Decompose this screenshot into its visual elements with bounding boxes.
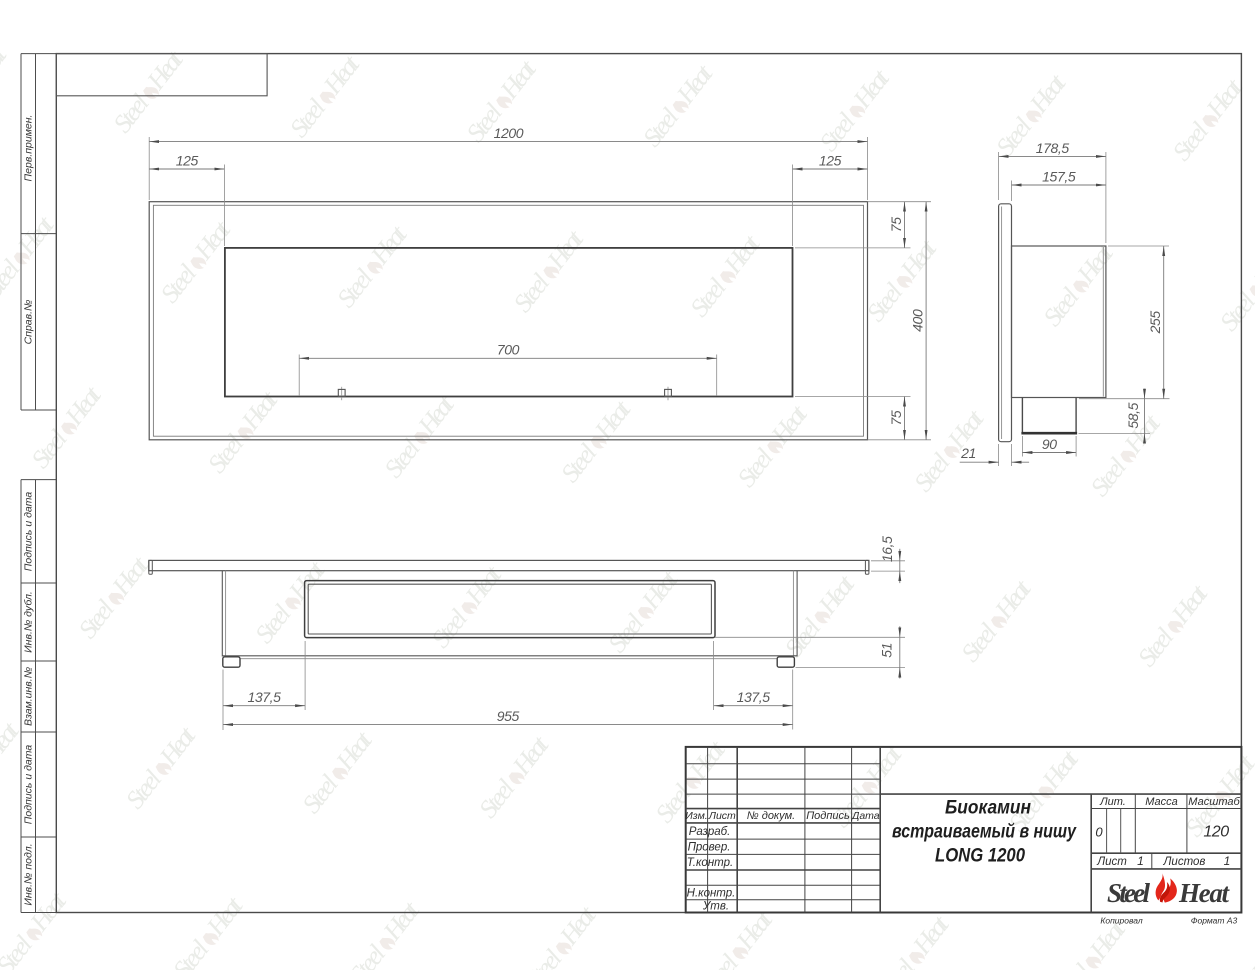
svg-text:1200: 1200 <box>494 125 524 141</box>
svg-text:125: 125 <box>176 152 199 168</box>
svg-text:Копировал: Копировал <box>1100 916 1142 926</box>
svg-text:Подпись и дата: Подпись и дата <box>23 745 35 825</box>
svg-text:51: 51 <box>879 643 895 658</box>
svg-text:Дата: Дата <box>851 810 880 822</box>
svg-text:120: 120 <box>1203 824 1229 841</box>
svg-text:Масштаб: Масштаб <box>1188 796 1240 808</box>
svg-text:1: 1 <box>1137 854 1144 868</box>
svg-text:700: 700 <box>497 342 520 358</box>
svg-text:Справ.№: Справ.№ <box>23 300 35 345</box>
svg-text:955: 955 <box>497 708 520 724</box>
svg-text:Лист: Лист <box>1096 856 1127 868</box>
svg-text:Взам.инв.№: Взам.инв.№ <box>23 667 35 726</box>
svg-text:Перв.примен.: Перв.примен. <box>23 115 35 182</box>
svg-text:Steel: Steel <box>1107 878 1150 908</box>
svg-text:Н.контр.: Н.контр. <box>687 887 736 899</box>
svg-text:Инв.№ подл.: Инв.№ подл. <box>23 843 35 905</box>
svg-text:встраиваемый в нишу: встраиваемый в нишу <box>892 822 1077 843</box>
svg-text:178,5: 178,5 <box>1036 140 1070 156</box>
svg-text:Heat: Heat <box>1178 878 1230 908</box>
svg-text:75: 75 <box>888 410 904 425</box>
svg-text:21: 21 <box>960 445 976 461</box>
svg-text:LONG 1200: LONG 1200 <box>935 846 1025 867</box>
svg-text:1: 1 <box>1224 854 1231 868</box>
svg-text:157,5: 157,5 <box>1042 168 1076 184</box>
svg-text:16,5: 16,5 <box>879 536 895 562</box>
svg-text:Подпись: Подпись <box>806 810 850 822</box>
svg-text:Биокамин: Биокамин <box>945 798 1031 819</box>
svg-text:Утв.: Утв. <box>702 901 729 913</box>
svg-text:400: 400 <box>909 309 925 332</box>
svg-text:58,5: 58,5 <box>1125 402 1141 428</box>
svg-text:Формат А3: Формат А3 <box>1191 916 1238 926</box>
svg-text:125: 125 <box>819 152 842 168</box>
svg-text:Т.контр.: Т.контр. <box>687 857 733 869</box>
svg-text:Подпись и дата: Подпись и дата <box>23 492 35 572</box>
svg-text:0: 0 <box>1095 824 1103 839</box>
svg-text:Масса: Масса <box>1145 796 1178 808</box>
svg-text:75: 75 <box>888 217 904 232</box>
svg-text:Провер.: Провер. <box>688 841 731 853</box>
svg-text:Листов: Листов <box>1163 856 1206 868</box>
svg-text:Лист: Лист <box>708 810 736 822</box>
svg-text:Лит.: Лит. <box>1099 796 1126 808</box>
svg-text:137,5: 137,5 <box>248 689 282 705</box>
svg-text:Изм.: Изм. <box>685 810 707 822</box>
svg-text:Инв.№ дубл.: Инв.№ дубл. <box>23 591 35 653</box>
svg-text:137,5: 137,5 <box>737 689 771 705</box>
svg-text:№ докум.: № докум. <box>747 810 795 822</box>
svg-text:90: 90 <box>1042 436 1057 452</box>
svg-text:Разраб.: Разраб. <box>689 826 731 838</box>
svg-text:255: 255 <box>1147 311 1163 335</box>
